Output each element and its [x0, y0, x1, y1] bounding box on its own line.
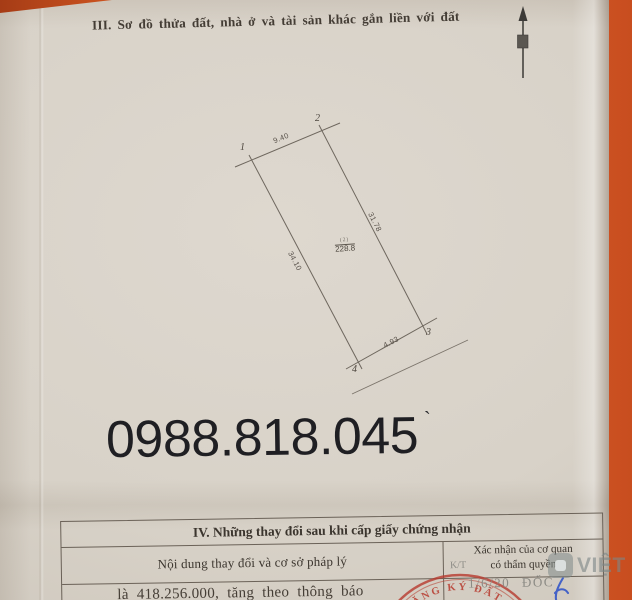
plot-corner-label-3: 3: [426, 327, 431, 338]
plot-corner-label-2: 2: [315, 113, 320, 124]
watermark-logo-icon: [548, 553, 573, 578]
screenshot-root: III. Sơ đồ thửa đất, nhà ở và tài sản kh…: [0, 0, 632, 600]
watermark: VIỆT: [548, 553, 626, 578]
entry-row-text: là 418.256.000, tăng theo thông báo: [117, 583, 364, 600]
phone-tick-mark: ˋ: [424, 408, 431, 431]
column-divider: [443, 579, 445, 600]
column-header-content: Nội dung thay đổi và cơ sở pháp lý: [62, 542, 444, 584]
phone-overlay: 0988.818.045: [106, 410, 419, 466]
plot-area-value: 228.8: [335, 243, 356, 255]
overprint-date: 1/6/20 ĐỐC: [468, 574, 554, 591]
overprint-date-value: 1/6/20: [468, 575, 510, 591]
watermark-text: VIỆT: [577, 554, 626, 578]
plot-area-label: (2) 228.8: [334, 237, 355, 254]
plot-corner-label-1: 1: [240, 142, 245, 153]
overprint-kt: K/T: [450, 560, 466, 572]
document-page: [0, 0, 609, 600]
plot-corner-label-4: 4: [352, 364, 357, 375]
